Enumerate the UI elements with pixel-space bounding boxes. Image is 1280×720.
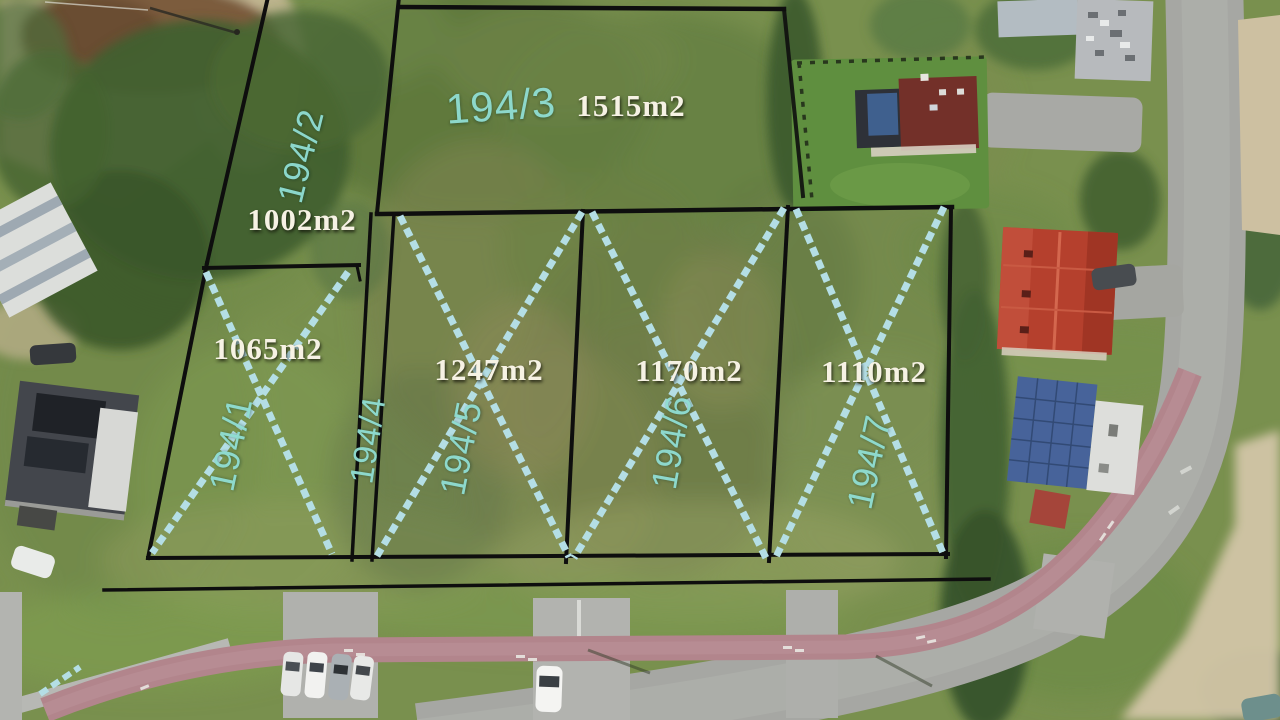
car-dark bbox=[29, 342, 76, 365]
photo-scene bbox=[0, 0, 1280, 720]
car-white bbox=[535, 666, 563, 713]
house-red-roof bbox=[997, 227, 1119, 361]
gazebo-red-roof bbox=[1029, 489, 1070, 529]
solar-panel bbox=[867, 93, 898, 136]
driveway-top bbox=[981, 92, 1143, 153]
aerial-plot-photo: 194/1 194/2 194/3 194/4 194/5 194/6 194/… bbox=[0, 0, 1280, 720]
house-dark-roof-solar bbox=[5, 381, 140, 521]
sand-strip-right bbox=[1238, 15, 1280, 235]
